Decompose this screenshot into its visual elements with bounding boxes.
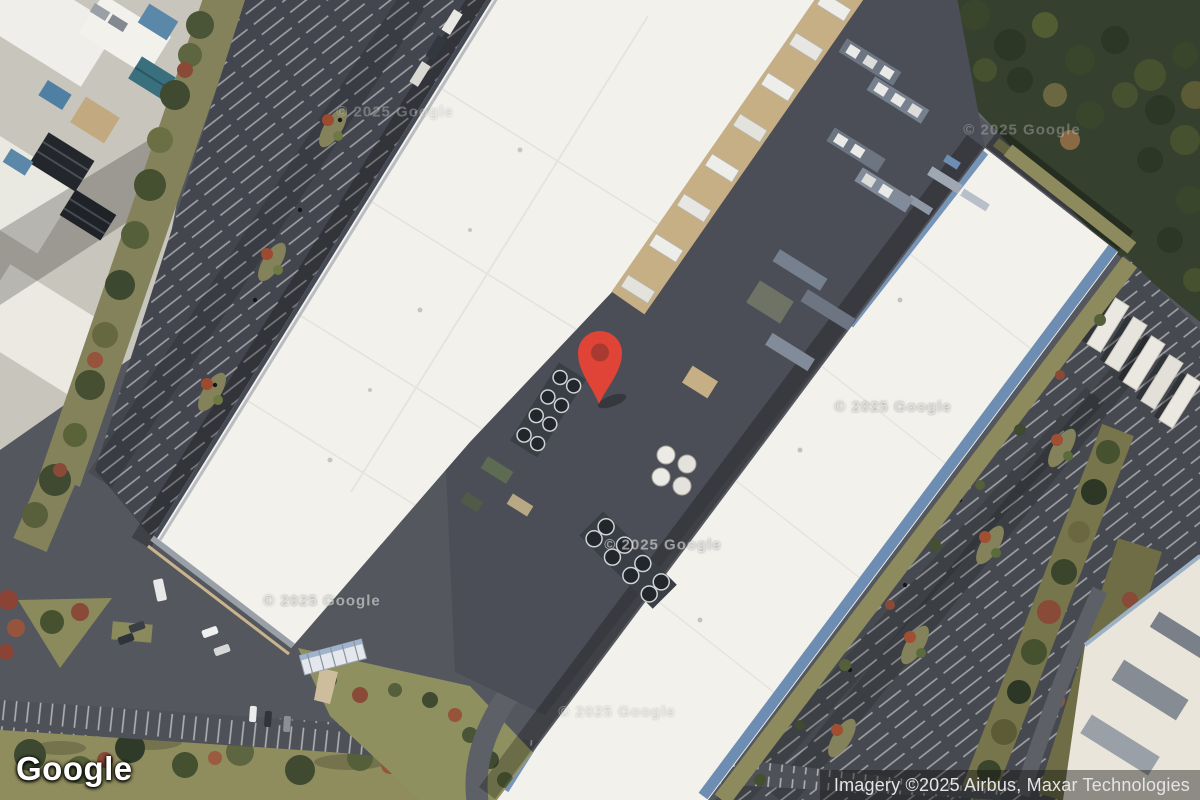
imagery-attribution: Imagery ©2025 Airbus, Maxar Technologies [820, 770, 1200, 800]
google-watermark: © 2025 Google [834, 399, 951, 416]
map-viewport[interactable]: © 2025 Google © 2025 Google © 2025 Googl… [0, 0, 1200, 800]
google-watermark: © 2025 Google [263, 593, 380, 610]
satellite-imagery[interactable] [0, 0, 1200, 800]
google-watermark: © 2025 Google [963, 122, 1080, 139]
google-watermark: © 2025 Google [558, 704, 675, 721]
google-watermark: © 2025 Google [336, 104, 453, 121]
google-logo[interactable]: Google [16, 750, 133, 788]
google-watermark: © 2025 Google [604, 537, 721, 554]
